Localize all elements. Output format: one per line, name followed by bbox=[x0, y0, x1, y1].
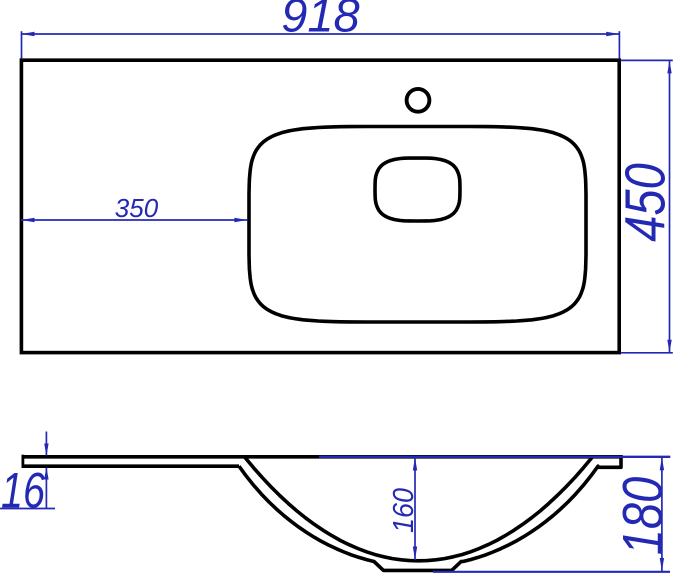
svg-text:160: 160 bbox=[387, 487, 419, 533]
svg-text:350: 350 bbox=[115, 193, 159, 223]
svg-text:450: 450 bbox=[614, 163, 673, 242]
svg-text:918: 918 bbox=[281, 0, 359, 42]
svg-text:16: 16 bbox=[1, 462, 45, 518]
svg-text:180: 180 bbox=[612, 477, 673, 556]
